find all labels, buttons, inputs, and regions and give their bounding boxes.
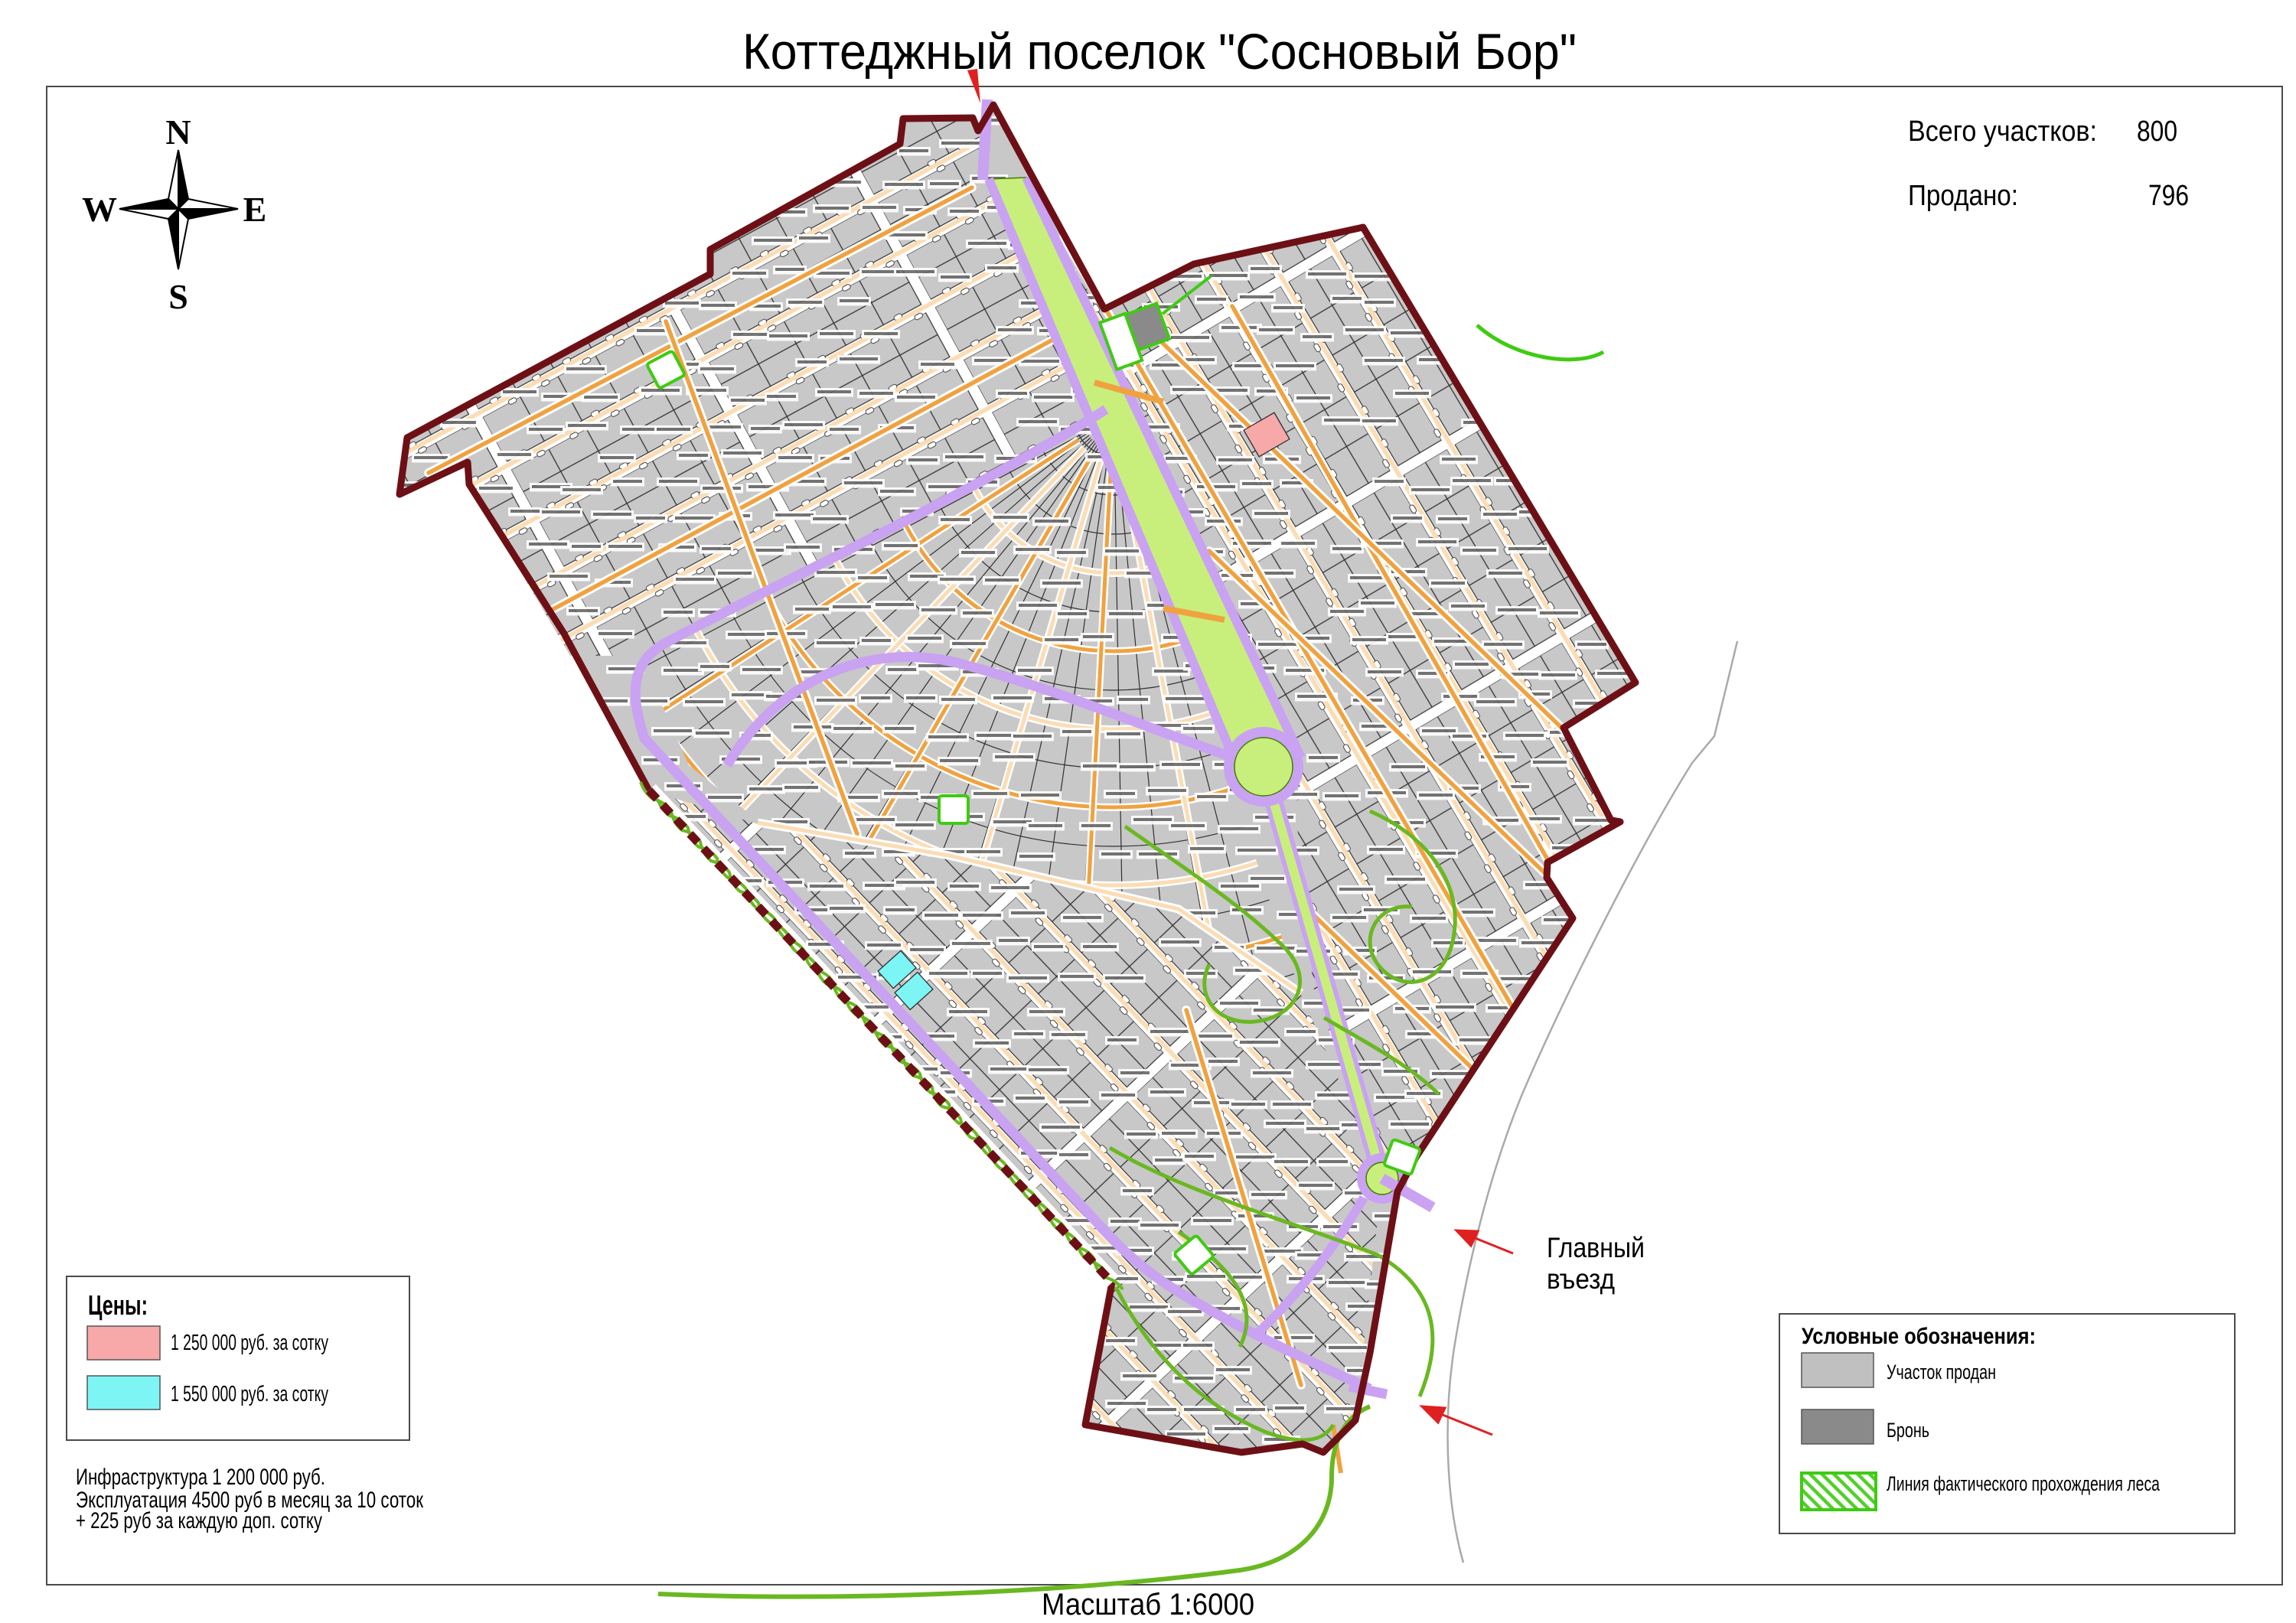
svg-text:Участок продан: Участок продан <box>1887 1361 1996 1383</box>
svg-text:1 550 000 руб. за сотку: 1 550 000 руб. за сотку <box>171 1382 328 1406</box>
svg-text:Линия фактического прохождения: Линия фактического прохождения леса <box>1887 1472 2161 1495</box>
svg-text:1 250 000 руб. за сотку: 1 250 000 руб. за сотку <box>171 1331 328 1355</box>
svg-text:+ 225 руб за каждую доп. сотку: + 225 руб за каждую доп. сотку <box>76 1508 322 1533</box>
svg-text:N: N <box>165 112 191 152</box>
svg-text:Продано:: Продано: <box>1908 180 2018 212</box>
svg-text:Цены:: Цены: <box>88 1289 148 1321</box>
svg-text:Бронь: Бронь <box>1887 1419 1929 1442</box>
svg-text:800: 800 <box>2137 116 2177 148</box>
svg-text:S: S <box>168 277 188 316</box>
svg-text:въезд: въезд <box>1547 1263 1615 1295</box>
svg-text:W: W <box>82 190 117 229</box>
svg-text:Инфраструктура 1 200 000 руб.: Инфраструктура 1 200 000 руб. <box>76 1465 325 1490</box>
svg-text:Коттеджный поселок "Сосновый Б: Коттеджный поселок "Сосновый Бор" <box>742 23 1577 80</box>
svg-text:Главный: Главный <box>1547 1232 1645 1263</box>
svg-text:Масштаб 1:6000: Масштаб 1:6000 <box>1042 1588 1254 1621</box>
svg-text:Условные обозначения:: Условные обозначения: <box>1802 1324 2036 1349</box>
svg-text:796: 796 <box>2148 180 2189 212</box>
svg-text:Всего участков:: Всего участков: <box>1908 116 2097 148</box>
svg-text:E: E <box>243 190 267 229</box>
